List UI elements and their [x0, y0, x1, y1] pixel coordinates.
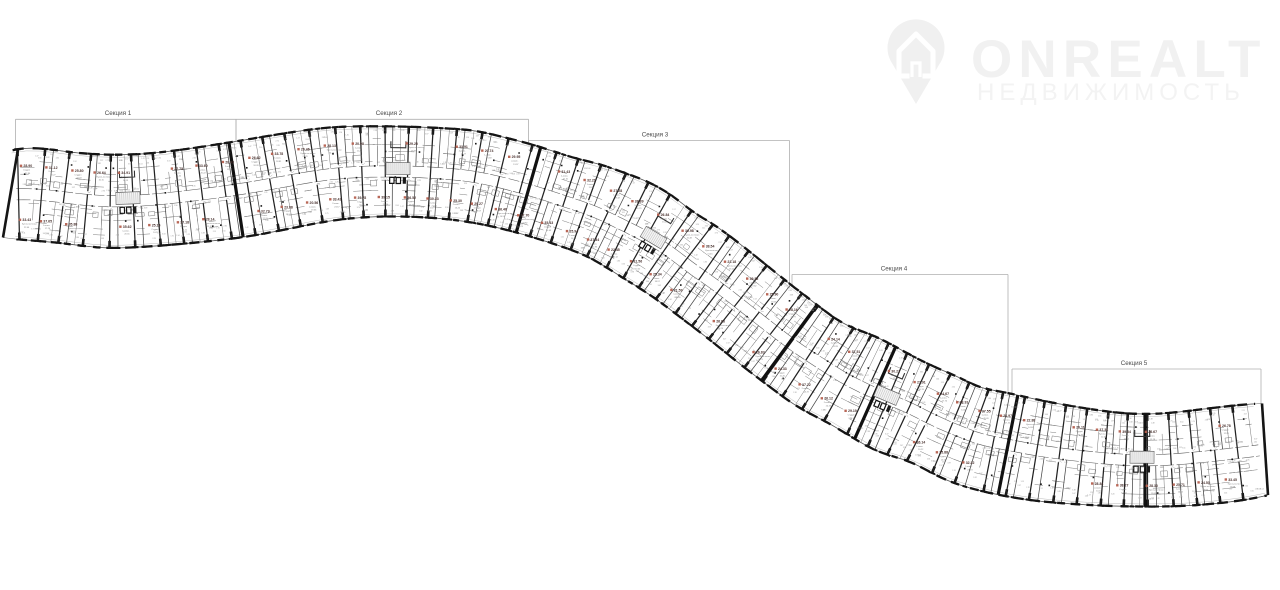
svg-text:3.19: 3.19: [680, 306, 683, 308]
svg-text:1.54: 1.54: [1260, 489, 1263, 491]
svg-text:3.42: 3.42: [658, 285, 661, 287]
svg-text:3.29: 3.29: [80, 238, 83, 240]
svg-text:21.91: 21.91: [917, 381, 926, 385]
svg-text:35.88: 35.88: [69, 223, 78, 227]
svg-text:1.25: 1.25: [725, 278, 728, 280]
svg-text:1.33: 1.33: [795, 356, 798, 358]
svg-text:2.87: 2.87: [59, 236, 62, 238]
svg-text:3.73: 3.73: [657, 229, 660, 231]
svg-text:30.33: 30.33: [430, 197, 439, 201]
svg-text:2.70: 2.70: [917, 399, 920, 401]
svg-text:1.30: 1.30: [599, 169, 602, 171]
svg-text:1.97: 1.97: [1111, 421, 1114, 423]
svg-text:2.62: 2.62: [1064, 462, 1067, 464]
svg-text:1.22: 1.22: [70, 205, 73, 207]
svg-text:1.18: 1.18: [1050, 487, 1053, 489]
svg-text:Кухня-гостиная: Кухня-гостиная: [409, 147, 424, 149]
svg-text:2-комн.: 2-комн.: [1148, 436, 1156, 438]
svg-text:Кухня-гостиная: Кухня-гостиная: [685, 235, 700, 237]
svg-text:22.34: 22.34: [893, 378, 899, 380]
svg-text:2.93: 2.93: [391, 210, 394, 212]
svg-text:2.66: 2.66: [1040, 458, 1043, 460]
svg-text:1.85: 1.85: [581, 196, 584, 198]
svg-text:2.42: 2.42: [694, 254, 697, 256]
svg-text:15.69: 15.69: [984, 418, 990, 420]
svg-text:35.43: 35.43: [544, 221, 553, 225]
svg-text:1.88: 1.88: [731, 285, 734, 287]
svg-text:2.67: 2.67: [613, 207, 616, 209]
svg-text:33.78: 33.78: [275, 152, 284, 156]
svg-text:3.20: 3.20: [584, 245, 587, 247]
svg-text:3.32: 3.32: [548, 203, 551, 205]
svg-text:1.37: 1.37: [649, 191, 652, 193]
svg-text:20.68: 20.68: [486, 158, 492, 160]
svg-text:3.84: 3.84: [646, 281, 649, 283]
svg-text:11.28: 11.28: [833, 346, 839, 348]
svg-text:3.97: 3.97: [948, 463, 951, 465]
svg-text:3.53: 3.53: [774, 278, 777, 280]
svg-text:2.97: 2.97: [718, 242, 721, 244]
svg-text:1.86: 1.86: [988, 398, 991, 400]
svg-text:3.57: 3.57: [546, 183, 549, 185]
svg-text:Студия: Студия: [74, 174, 81, 176]
svg-text:2.50: 2.50: [840, 325, 843, 327]
svg-text:18.83: 18.83: [1203, 489, 1209, 491]
svg-text:3.78: 3.78: [1126, 448, 1129, 450]
svg-text:1.25: 1.25: [505, 219, 508, 221]
svg-text:3.20: 3.20: [1111, 493, 1114, 495]
svg-text:2-комн.: 2-комн.: [459, 151, 467, 153]
svg-text:1.15: 1.15: [1151, 498, 1154, 500]
svg-text:3.86: 3.86: [1194, 496, 1197, 498]
svg-text:1.18: 1.18: [68, 155, 71, 157]
svg-text:Кухня-гостиная: Кухня-гостиная: [1099, 434, 1114, 436]
svg-text:3.71: 3.71: [702, 285, 705, 287]
svg-text:2.94: 2.94: [942, 462, 945, 464]
svg-text:2.15: 2.15: [273, 172, 276, 174]
svg-text:3.33: 3.33: [375, 180, 378, 182]
svg-text:3.61: 3.61: [297, 215, 300, 217]
svg-text:3.47: 3.47: [752, 261, 755, 263]
svg-text:3.18: 3.18: [484, 166, 487, 168]
svg-text:3.83: 3.83: [396, 160, 399, 162]
svg-text:2.23: 2.23: [1124, 421, 1127, 423]
svg-text:3.45: 3.45: [694, 218, 697, 220]
svg-text:2.96: 2.96: [882, 404, 885, 406]
svg-text:2.32: 2.32: [505, 224, 508, 226]
svg-text:2-комн.: 2-комн.: [824, 402, 832, 404]
svg-text:15.88: 15.88: [1230, 487, 1236, 489]
svg-text:28.14: 28.14: [206, 218, 215, 222]
svg-text:Секция 3: Секция 3: [642, 131, 669, 138]
svg-text:2.78: 2.78: [1006, 431, 1009, 433]
svg-text:1.81: 1.81: [922, 402, 925, 404]
svg-text:1-комн.: 1-комн.: [484, 154, 492, 156]
svg-text:1.41: 1.41: [1141, 467, 1144, 469]
svg-text:3.81: 3.81: [920, 371, 923, 373]
svg-text:3.27: 3.27: [723, 338, 726, 340]
svg-text:1.14: 1.14: [466, 137, 469, 139]
svg-text:2.78: 2.78: [1201, 495, 1204, 497]
svg-text:1-комн.: 1-комн.: [174, 172, 182, 174]
svg-text:19.13: 19.13: [850, 418, 856, 420]
svg-text:1.44: 1.44: [136, 189, 139, 191]
svg-text:15.81: 15.81: [1151, 493, 1157, 495]
svg-text:33.45: 33.45: [1228, 478, 1237, 482]
svg-text:32.32: 32.32: [966, 461, 975, 465]
svg-text:3.88: 3.88: [460, 210, 463, 212]
svg-text:1.64: 1.64: [1240, 441, 1243, 443]
svg-text:2.73: 2.73: [671, 239, 674, 241]
svg-text:3.60: 3.60: [690, 253, 693, 255]
svg-text:31.56: 31.56: [633, 260, 642, 264]
svg-text:3.50: 3.50: [1180, 422, 1183, 424]
svg-text:3.72: 3.72: [1156, 498, 1159, 500]
svg-text:3.87: 3.87: [93, 188, 96, 190]
svg-text:2.47: 2.47: [481, 140, 484, 142]
svg-text:1.91: 1.91: [171, 235, 174, 237]
svg-text:28.16: 28.16: [789, 308, 798, 312]
svg-text:2-комн.: 2-комн.: [1094, 487, 1102, 489]
svg-text:10.22: 10.22: [918, 449, 924, 451]
svg-text:1.88: 1.88: [201, 233, 204, 235]
svg-text:32.21: 32.21: [587, 178, 596, 182]
svg-text:3.64: 3.64: [933, 461, 936, 463]
svg-text:18.28: 18.28: [253, 165, 259, 167]
svg-text:2.74: 2.74: [421, 207, 424, 209]
svg-text:2.48: 2.48: [1151, 422, 1154, 424]
svg-text:2.76: 2.76: [547, 156, 550, 158]
svg-text:3.55: 3.55: [1049, 460, 1052, 462]
svg-text:29.19: 29.19: [848, 409, 857, 413]
svg-text:13.37: 13.37: [513, 164, 519, 166]
svg-text:1.96: 1.96: [216, 227, 219, 229]
svg-text:3.86: 3.86: [356, 162, 359, 164]
svg-text:1.73: 1.73: [1226, 442, 1229, 444]
svg-text:1.23: 1.23: [231, 178, 234, 180]
svg-text:1.87: 1.87: [1120, 449, 1123, 451]
svg-text:21.59: 21.59: [674, 288, 683, 292]
svg-text:28.43: 28.43: [225, 160, 234, 164]
svg-text:34.91: 34.91: [121, 171, 130, 175]
svg-text:18.92: 18.92: [286, 214, 292, 216]
svg-text:1.94: 1.94: [1037, 440, 1040, 442]
svg-text:29.25: 29.25: [409, 142, 418, 146]
svg-text:2.48: 2.48: [346, 208, 349, 210]
svg-text:1.47: 1.47: [498, 170, 501, 172]
svg-text:3.90: 3.90: [365, 210, 368, 212]
svg-text:1.70: 1.70: [1095, 420, 1098, 422]
svg-text:1.18: 1.18: [351, 163, 354, 165]
svg-text:3.51: 3.51: [1182, 447, 1185, 449]
svg-text:14.13: 14.13: [123, 180, 129, 182]
svg-text:3.47: 3.47: [830, 377, 833, 379]
svg-text:1.59: 1.59: [1056, 441, 1059, 443]
svg-text:3.12: 3.12: [160, 186, 163, 188]
svg-text:1.35: 1.35: [264, 192, 267, 194]
svg-text:26.64: 26.64: [97, 171, 106, 175]
svg-text:2.89: 2.89: [973, 423, 976, 425]
svg-text:3.60: 3.60: [865, 396, 868, 398]
svg-text:1.22: 1.22: [74, 206, 77, 208]
svg-text:2.78: 2.78: [448, 163, 451, 165]
svg-text:2.75: 2.75: [1111, 448, 1114, 450]
svg-text:Кухня-гостиная: Кухня-гостиная: [205, 223, 220, 225]
svg-text:26.12: 26.12: [824, 397, 833, 401]
svg-text:39.78: 39.78: [358, 196, 367, 200]
svg-text:1.94: 1.94: [510, 225, 513, 227]
svg-text:1.42: 1.42: [245, 227, 248, 229]
svg-text:3.91: 3.91: [649, 284, 652, 286]
svg-text:27.75: 27.75: [174, 167, 183, 171]
svg-text:1.77: 1.77: [886, 439, 889, 441]
svg-text:1.57: 1.57: [177, 156, 180, 158]
svg-text:20.40: 20.40: [383, 204, 389, 206]
svg-text:1.22: 1.22: [725, 280, 728, 282]
svg-text:3.76: 3.76: [259, 224, 262, 226]
svg-text:1.66: 1.66: [813, 308, 816, 310]
svg-text:12.21: 12.21: [1124, 438, 1130, 440]
svg-text:23.57: 23.57: [334, 206, 340, 208]
svg-text:23.43: 23.43: [359, 205, 365, 207]
svg-text:1.71: 1.71: [985, 478, 988, 480]
svg-text:15.48: 15.48: [687, 238, 693, 240]
svg-text:1.40: 1.40: [265, 220, 268, 222]
svg-text:Студия: Студия: [23, 170, 30, 172]
svg-text:2.39: 2.39: [901, 413, 904, 415]
svg-text:3.23: 3.23: [808, 305, 811, 307]
svg-text:3.52: 3.52: [46, 185, 49, 187]
svg-text:1.53: 1.53: [753, 299, 756, 301]
svg-text:3.26: 3.26: [1201, 445, 1204, 447]
svg-text:25.71: 25.71: [1176, 483, 1185, 487]
svg-text:1.57: 1.57: [252, 222, 255, 224]
svg-text:21.12: 21.12: [613, 257, 619, 259]
svg-text:1-комн.: 1-комн.: [355, 147, 363, 149]
svg-text:1.37: 1.37: [848, 331, 851, 333]
svg-text:3.46: 3.46: [1045, 414, 1048, 416]
svg-text:2.49: 2.49: [681, 303, 684, 305]
svg-text:3.25: 3.25: [688, 308, 691, 310]
svg-text:3.38: 3.38: [1072, 490, 1075, 492]
svg-text:3.93: 3.93: [875, 430, 878, 432]
svg-text:2.16: 2.16: [407, 133, 410, 135]
svg-text:26.84: 26.84: [661, 213, 670, 217]
svg-text:2.65: 2.65: [773, 372, 776, 374]
svg-text:3.78: 3.78: [1168, 448, 1171, 450]
svg-text:3.12: 3.12: [1066, 417, 1069, 419]
svg-text:20.55: 20.55: [124, 234, 130, 236]
svg-text:19.62: 19.62: [751, 286, 757, 288]
svg-text:3.68: 3.68: [830, 323, 833, 325]
svg-text:24.33: 24.33: [778, 367, 787, 371]
svg-text:1.85: 1.85: [860, 428, 863, 430]
svg-text:Кухня-гостиная: Кухня-гостиная: [68, 228, 83, 230]
svg-text:Студия: Студия: [284, 211, 291, 213]
svg-text:2.23: 2.23: [262, 172, 265, 174]
svg-text:2.24: 2.24: [893, 443, 896, 445]
svg-text:Кухня-гостиная: Кухня-гостиная: [716, 325, 731, 327]
svg-text:22.88: 22.88: [1027, 419, 1036, 423]
svg-text:Студия: Студия: [917, 386, 924, 388]
svg-text:3.98: 3.98: [902, 391, 905, 393]
svg-text:3.11: 3.11: [528, 149, 531, 151]
svg-text:26.78: 26.78: [1222, 424, 1231, 428]
svg-text:35.62: 35.62: [123, 225, 132, 229]
svg-text:16.92: 16.92: [500, 216, 506, 218]
svg-text:Секция 5: Секция 5: [1121, 360, 1148, 367]
svg-text:3.11: 3.11: [356, 180, 359, 182]
svg-text:Кухня-гостиная: Кухня-гостиная: [327, 149, 342, 151]
svg-text:1.41: 1.41: [760, 272, 763, 274]
svg-text:26.11: 26.11: [1076, 426, 1085, 430]
svg-text:2.98: 2.98: [1026, 438, 1029, 440]
svg-text:3.78: 3.78: [1201, 463, 1204, 465]
svg-text:2.17: 2.17: [730, 250, 733, 252]
svg-text:1.75: 1.75: [392, 129, 395, 131]
svg-text:1.40: 1.40: [1115, 447, 1118, 449]
svg-text:3.84: 3.84: [1016, 403, 1019, 405]
svg-text:2.66: 2.66: [1098, 415, 1101, 417]
svg-text:1.14: 1.14: [31, 183, 34, 185]
svg-text:2.67: 2.67: [322, 137, 325, 139]
svg-text:25.94: 25.94: [569, 230, 578, 234]
svg-text:1.15: 1.15: [1021, 481, 1024, 483]
svg-text:1.67: 1.67: [649, 196, 652, 198]
svg-text:1.35: 1.35: [548, 152, 551, 154]
svg-text:2-комн.: 2-комн.: [611, 253, 619, 255]
svg-text:Студия: Студия: [251, 162, 258, 164]
svg-text:3.50: 3.50: [347, 161, 350, 163]
svg-text:3.35: 3.35: [909, 445, 912, 447]
svg-text:1.67: 1.67: [1072, 493, 1075, 495]
svg-text:Студия: Студия: [939, 456, 946, 458]
svg-text:1.55: 1.55: [195, 153, 198, 155]
svg-text:1.56: 1.56: [1128, 418, 1131, 420]
svg-text:2.12: 2.12: [1211, 414, 1214, 416]
svg-text:22.34: 22.34: [76, 178, 82, 180]
svg-text:3.56: 3.56: [174, 205, 177, 207]
svg-text:3.17: 3.17: [84, 234, 87, 236]
svg-text:11.97: 11.97: [227, 169, 233, 171]
svg-text:3.97: 3.97: [825, 354, 828, 356]
svg-text:1.20: 1.20: [227, 152, 230, 154]
svg-text:1.93: 1.93: [735, 345, 738, 347]
svg-text:25.34: 25.34: [653, 273, 662, 277]
svg-text:3.98: 3.98: [844, 363, 847, 365]
svg-text:1-комн.: 1-комн.: [381, 201, 389, 203]
svg-text:2-комн.: 2-комн.: [511, 161, 519, 163]
svg-text:33.60: 33.60: [199, 164, 208, 168]
svg-text:3.67: 3.67: [1103, 421, 1106, 423]
svg-text:38.54: 38.54: [706, 245, 715, 249]
svg-text:24.14: 24.14: [329, 153, 335, 155]
svg-text:1.22: 1.22: [187, 234, 190, 236]
svg-text:1-комн.: 1-комн.: [851, 356, 859, 358]
svg-text:2.24: 2.24: [73, 161, 76, 163]
svg-text:24.43: 24.43: [546, 230, 552, 232]
svg-text:2.10: 2.10: [120, 190, 123, 192]
svg-text:3.85: 3.85: [680, 245, 683, 247]
svg-text:1.91: 1.91: [1103, 447, 1106, 449]
svg-text:2.62: 2.62: [429, 211, 432, 213]
svg-text:23.77: 23.77: [791, 317, 797, 319]
svg-text:25.14: 25.14: [152, 224, 161, 228]
svg-text:10.13: 10.13: [919, 389, 925, 391]
svg-text:1.74: 1.74: [978, 425, 981, 427]
svg-text:1.90: 1.90: [158, 158, 161, 160]
svg-text:1.70: 1.70: [114, 191, 117, 193]
svg-text:3.56: 3.56: [343, 163, 346, 165]
svg-text:24.67: 24.67: [940, 392, 949, 396]
svg-text:18.97: 18.97: [655, 281, 661, 283]
svg-text:3.14: 3.14: [464, 183, 467, 185]
svg-text:3.90: 3.90: [823, 409, 826, 411]
svg-text:24.76: 24.76: [1078, 434, 1084, 436]
svg-text:15.26: 15.26: [780, 376, 786, 378]
svg-text:2-комн.: 2-комн.: [453, 204, 461, 206]
svg-text:1.43: 1.43: [885, 386, 888, 388]
svg-text:1.49: 1.49: [616, 211, 619, 213]
svg-text:32.79: 32.79: [261, 209, 270, 213]
svg-text:Кухня-гостиная: Кухня-гостиная: [22, 224, 37, 226]
svg-text:10.69: 10.69: [1121, 492, 1127, 494]
svg-text:37.34: 37.34: [590, 238, 599, 242]
svg-text:1.21: 1.21: [1179, 447, 1182, 449]
svg-text:3.18: 3.18: [927, 424, 930, 426]
svg-text:3.81: 3.81: [959, 467, 962, 469]
svg-text:1.27: 1.27: [296, 138, 299, 140]
svg-text:Секция 1: Секция 1: [105, 110, 132, 117]
svg-text:1.36: 1.36: [1073, 442, 1076, 444]
svg-text:3.52: 3.52: [606, 176, 609, 178]
svg-text:2.69: 2.69: [661, 293, 664, 295]
svg-text:20.52: 20.52: [635, 268, 641, 270]
svg-text:1.29: 1.29: [208, 201, 211, 203]
svg-text:Студия: Студия: [544, 227, 551, 229]
svg-text:2.65: 2.65: [319, 165, 322, 167]
svg-text:28.91: 28.91: [960, 401, 969, 405]
svg-text:3.58: 3.58: [488, 136, 491, 138]
svg-text:18.88: 18.88: [853, 359, 859, 361]
svg-text:3.32: 3.32: [1007, 484, 1010, 486]
svg-text:3.64: 3.64: [382, 130, 385, 132]
svg-text:18.66: 18.66: [771, 301, 777, 303]
svg-text:3.60: 3.60: [222, 230, 225, 232]
svg-text:2.72: 2.72: [106, 160, 109, 162]
svg-text:1-комн.: 1-комн.: [199, 169, 207, 171]
svg-text:16.52: 16.52: [153, 232, 159, 234]
svg-text:1-комн.: 1-комн.: [261, 215, 269, 217]
svg-text:1-комн.: 1-комн.: [965, 466, 973, 468]
svg-text:3.15: 3.15: [212, 182, 215, 184]
svg-text:25.80: 25.80: [75, 169, 84, 173]
svg-text:3.90: 3.90: [515, 225, 518, 227]
svg-text:1.67: 1.67: [1229, 489, 1232, 491]
svg-text:2.96: 2.96: [581, 248, 584, 250]
svg-text:33.42: 33.42: [333, 198, 342, 202]
svg-text:Студия: Студия: [749, 282, 756, 284]
svg-text:3.20: 3.20: [696, 224, 699, 226]
svg-text:1-комн.: 1-комн.: [1003, 420, 1011, 422]
svg-text:3.45: 3.45: [282, 144, 285, 146]
svg-text:2.42: 2.42: [702, 227, 705, 229]
svg-text:11.79: 11.79: [636, 208, 642, 210]
svg-text:2.20: 2.20: [1106, 416, 1109, 418]
svg-text:3.11: 3.11: [797, 388, 800, 390]
svg-text:24.53: 24.53: [1201, 481, 1210, 485]
svg-text:2.57: 2.57: [125, 159, 128, 161]
